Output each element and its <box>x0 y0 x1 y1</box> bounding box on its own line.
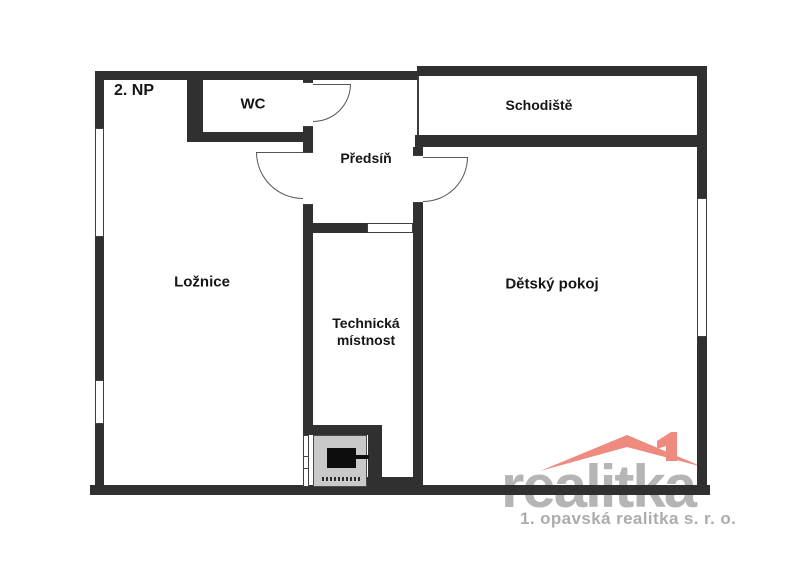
vent-tick-2 <box>303 468 309 469</box>
wc-door-arc <box>313 84 351 122</box>
rightmid-wall-bottom <box>413 203 423 487</box>
loznice-door-arc <box>256 152 303 199</box>
predsin-technicka-opening <box>367 223 413 233</box>
room-label-predsin: Předsíň <box>340 150 391 166</box>
boiler-firebox <box>327 448 356 468</box>
niche-bottom-wall <box>365 477 421 495</box>
logo-subtitle-text: 1. opavská realitka s. r. o. <box>520 509 736 529</box>
top-wall-right <box>417 66 707 76</box>
niche-top-wall <box>303 425 370 435</box>
vent-tick-1 <box>303 456 309 457</box>
room-label-technicka-line1: Technická <box>332 315 399 332</box>
boiler-label-illegible <box>322 477 360 481</box>
detsky-door-opening <box>413 155 423 203</box>
loznice-door-opening <box>303 152 313 205</box>
rightmid-wall-top <box>413 147 423 155</box>
boiler-flue-pipe <box>354 455 369 459</box>
detsky-door-arc <box>423 157 468 202</box>
room-label-loznice: Ložnice <box>174 274 230 291</box>
room-label-technicka: Technická místnost <box>332 315 399 349</box>
mid-wall-top <box>303 71 313 82</box>
left-wall-window-upper <box>95 128 104 237</box>
right-wall-upper <box>697 66 707 198</box>
left-wall-seg1 <box>95 71 104 128</box>
left-wall-seg3 <box>95 424 104 487</box>
left-wall-seg2 <box>95 237 104 380</box>
mid-wall-mid <box>303 127 313 152</box>
predsin-bottom-wall <box>303 223 367 233</box>
mid-wall-lower <box>303 205 313 425</box>
wc-bottom-wall <box>187 132 313 142</box>
room-label-detsky-pokoj: Dětský pokoj <box>505 276 598 293</box>
right-wall-window <box>697 198 707 337</box>
room-label-schodiste: Schodiště <box>506 97 573 113</box>
left-wall-window-lower <box>95 380 104 424</box>
floor-plan: realitka 1. opavská realitka s. r. o. 2.… <box>0 0 800 565</box>
floor-label: 2. NP <box>114 82 154 100</box>
room-label-technicka-line2: místnost <box>332 332 399 349</box>
right-wall-lower <box>697 337 707 495</box>
wc-door-opening <box>303 82 313 127</box>
schodiste-bottom-wall <box>415 135 702 147</box>
room-label-wc: WC <box>241 96 266 113</box>
predsin-schodiste-divider <box>417 76 419 135</box>
niche-side-vent <box>303 435 309 487</box>
top-wall-left <box>95 71 417 80</box>
